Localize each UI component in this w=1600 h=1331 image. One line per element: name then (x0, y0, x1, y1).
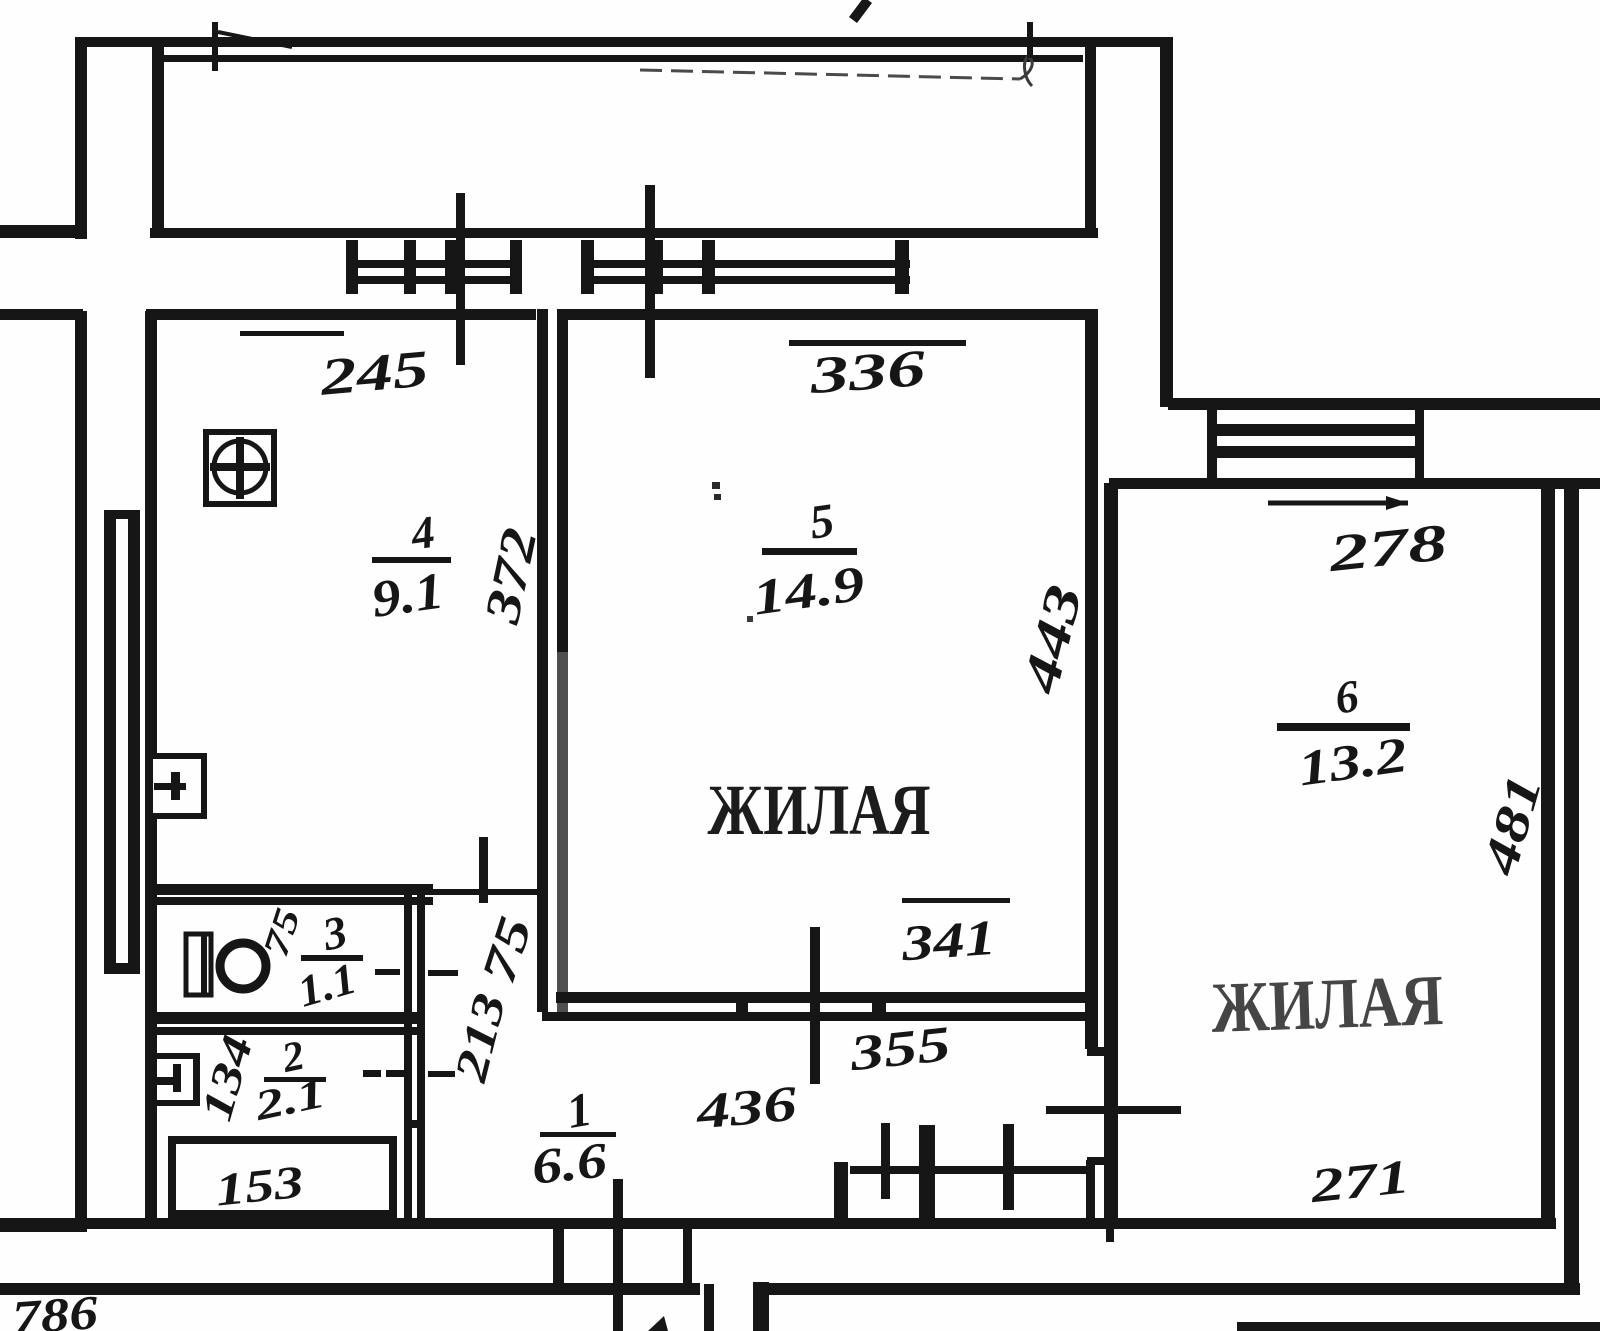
svg-text:436: 436 (693, 1075, 799, 1140)
svg-text:153: 153 (213, 1156, 306, 1216)
svg-text:341: 341 (899, 909, 998, 972)
svg-text:355: 355 (846, 1015, 953, 1081)
svg-text:ЖИЛАЯ: ЖИЛАЯ (1210, 960, 1445, 1048)
svg-text:271: 271 (1307, 1150, 1412, 1213)
svg-text:6.6: 6.6 (529, 1131, 609, 1195)
svg-text:245: 245 (317, 340, 431, 406)
svg-text:786: 786 (10, 1286, 99, 1331)
svg-text:ЖИЛАЯ: ЖИЛАЯ (708, 770, 931, 850)
svg-text:9.1: 9.1 (368, 562, 447, 628)
svg-text:336: 336 (807, 340, 927, 405)
